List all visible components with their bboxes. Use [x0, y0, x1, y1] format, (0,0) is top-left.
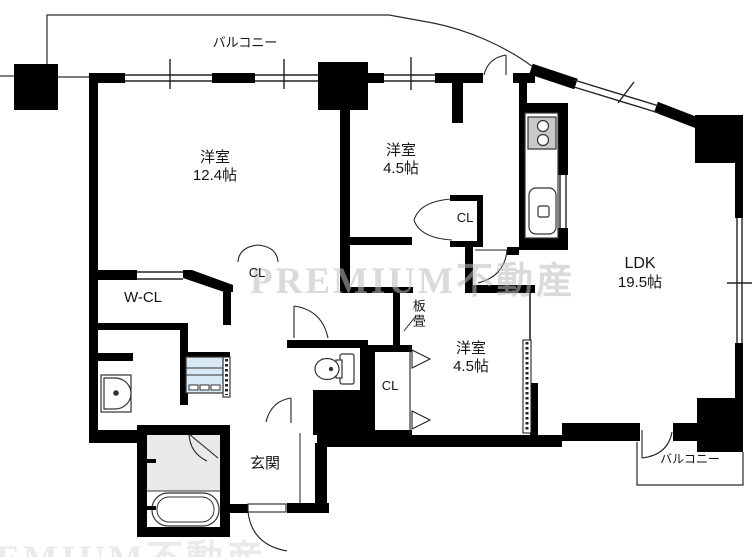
closet-main-label: CL — [236, 265, 278, 281]
ldk-name: LDK — [590, 254, 690, 274]
ldk-size: 19.5帖 — [590, 274, 690, 292]
door-arc — [294, 306, 328, 338]
toilet-icon — [315, 354, 354, 384]
closet-north-label: CL — [450, 210, 480, 226]
vanity-sink-icon — [101, 375, 131, 412]
door-arc — [248, 512, 287, 551]
floor-plan: PREMIUM不動産 PREMIUM不動産 バルコニー 洋室 12.4帖 洋室 … — [0, 0, 753, 557]
balcony-top-label: バルコニー — [195, 35, 295, 51]
bedroom-south-name: 洋室 — [426, 340, 516, 358]
washing-machine-icon — [186, 357, 223, 393]
bedroom-main-label: 洋室 12.4帖 — [150, 149, 280, 186]
bedroom-south-label: 洋室 4.5帖 — [426, 340, 516, 377]
itajo-label: 板畳 — [410, 299, 426, 329]
door-arc — [266, 398, 291, 422]
bedroom-main-name: 洋室 — [150, 149, 280, 167]
balcony-bottom-label: バルコニー — [645, 452, 735, 467]
pillar — [318, 62, 368, 110]
pillar — [695, 115, 743, 163]
walk-in-closet-label: W-CL — [100, 289, 186, 307]
windows — [125, 57, 752, 343]
folding-door-icon — [412, 411, 430, 429]
bedroom-south-size: 4.5帖 — [426, 358, 516, 376]
shower-room — [147, 433, 220, 491]
bedroom-north-label: 洋室 4.5帖 — [355, 142, 447, 179]
pillar — [14, 64, 58, 110]
closet-double-door — [238, 245, 278, 262]
bathtub-icon — [147, 491, 220, 526]
doors — [189, 55, 672, 551]
ldk-label: LDK 19.5帖 — [590, 254, 690, 292]
bedroom-north-size: 4.5帖 — [355, 160, 447, 178]
entrance-label: 玄関 — [234, 455, 296, 473]
bedroom-main-size: 12.4帖 — [150, 167, 280, 185]
closet-south-label: CL — [369, 378, 411, 394]
entrance-door-leaf — [248, 504, 286, 512]
closet-double-door — [414, 199, 452, 240]
door-arc — [484, 55, 506, 75]
door-arc — [478, 250, 507, 283]
kitchen-sink-icon — [529, 188, 556, 234]
pillar — [697, 398, 743, 452]
bedroom-north-name: 洋室 — [355, 142, 447, 160]
stove-icon — [528, 117, 556, 149]
